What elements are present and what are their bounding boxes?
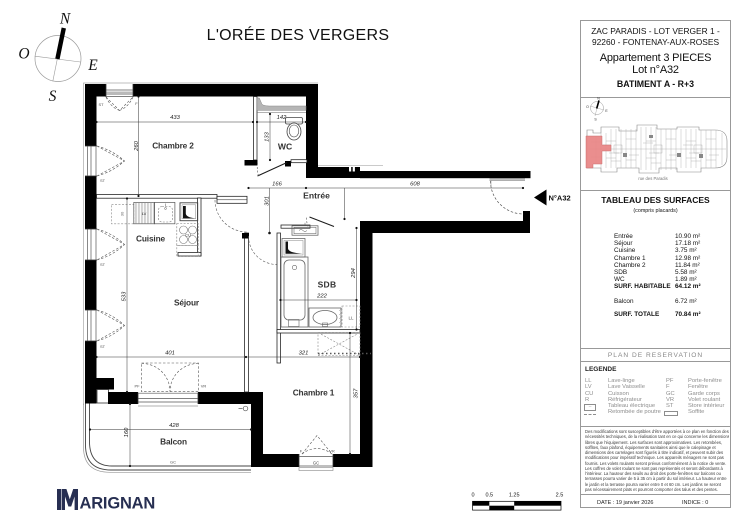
svg-text:533: 533 (122, 291, 128, 301)
svg-text:N: N (597, 97, 600, 101)
svg-text:S: S (594, 118, 597, 122)
svg-text:S: S (49, 88, 57, 105)
svg-text:O: O (18, 46, 29, 63)
svg-text:Cuisine: Cuisine (136, 234, 165, 244)
svg-text:401: 401 (165, 351, 175, 357)
svg-text:166: 166 (272, 182, 282, 188)
svg-text:Chambre 1: Chambre 1 (293, 388, 335, 398)
svg-text:N: N (59, 11, 72, 28)
svg-text:ST: ST (100, 178, 106, 183)
svg-text:1.25: 1.25 (509, 492, 520, 498)
svg-text:133: 133 (265, 131, 271, 141)
svg-text:LV: LV (142, 211, 147, 216)
svg-text:0.5: 0.5 (485, 492, 493, 498)
svg-text:608: 608 (410, 182, 420, 188)
svg-text:O: O (586, 105, 589, 109)
svg-text:357: 357 (354, 388, 360, 398)
svg-text:160: 160 (124, 427, 130, 437)
svg-text:VR: VR (201, 384, 207, 389)
svg-text:ST: ST (100, 262, 106, 267)
svg-text:VR: VR (329, 449, 335, 454)
svg-text:F: F (300, 449, 303, 454)
svg-text:F: F (135, 101, 138, 106)
svg-text:PF: PF (134, 384, 140, 389)
svg-text:30: 30 (120, 211, 125, 216)
svg-text:Balcon: Balcon (160, 437, 187, 447)
svg-text:ARIGNAN: ARIGNAN (80, 495, 156, 513)
svg-text:GC: GC (170, 460, 176, 465)
svg-text:0: 0 (471, 492, 474, 498)
svg-text:Séjour: Séjour (174, 298, 200, 308)
svg-text:301: 301 (265, 196, 271, 206)
svg-text:E: E (87, 57, 98, 74)
svg-text:433: 433 (170, 115, 180, 121)
svg-text:E: E (605, 109, 608, 113)
svg-text:CU: CU (185, 233, 191, 238)
svg-text:LL: LL (348, 316, 354, 321)
svg-text:.. ..: .. .. (168, 385, 172, 389)
svg-text:260: 260 (134, 140, 140, 151)
svg-text:2.5: 2.5 (556, 492, 564, 498)
svg-text:N°A32: N°A32 (549, 194, 571, 203)
svg-text:294: 294 (351, 268, 357, 279)
svg-text:ST: ST (100, 344, 106, 349)
svg-text:Entrée: Entrée (303, 191, 330, 201)
svg-text:WC: WC (278, 142, 292, 152)
svg-text:Chambre 2: Chambre 2 (152, 141, 194, 151)
svg-text:142: 142 (277, 115, 287, 121)
svg-text:GC: GC (313, 461, 319, 466)
svg-text:428: 428 (169, 423, 179, 429)
svg-text:222: 222 (316, 294, 327, 300)
svg-text:SDB: SDB (318, 280, 337, 290)
svg-text:321: 321 (299, 351, 309, 357)
svg-text:ST: ST (98, 102, 104, 107)
svg-text:rue des Paradis: rue des Paradis (638, 176, 667, 181)
